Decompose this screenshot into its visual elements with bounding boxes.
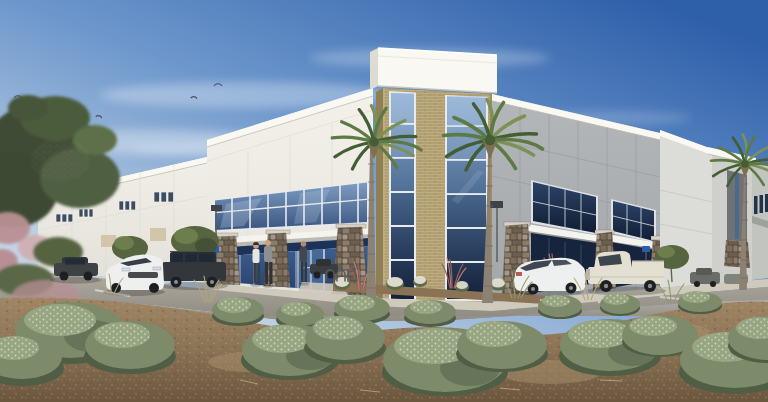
- glass-tower: [370, 48, 497, 302]
- right-wing-windows: [754, 194, 768, 214]
- architectural-rendering: [0, 0, 768, 402]
- tower-parapet-cap: [370, 48, 497, 93]
